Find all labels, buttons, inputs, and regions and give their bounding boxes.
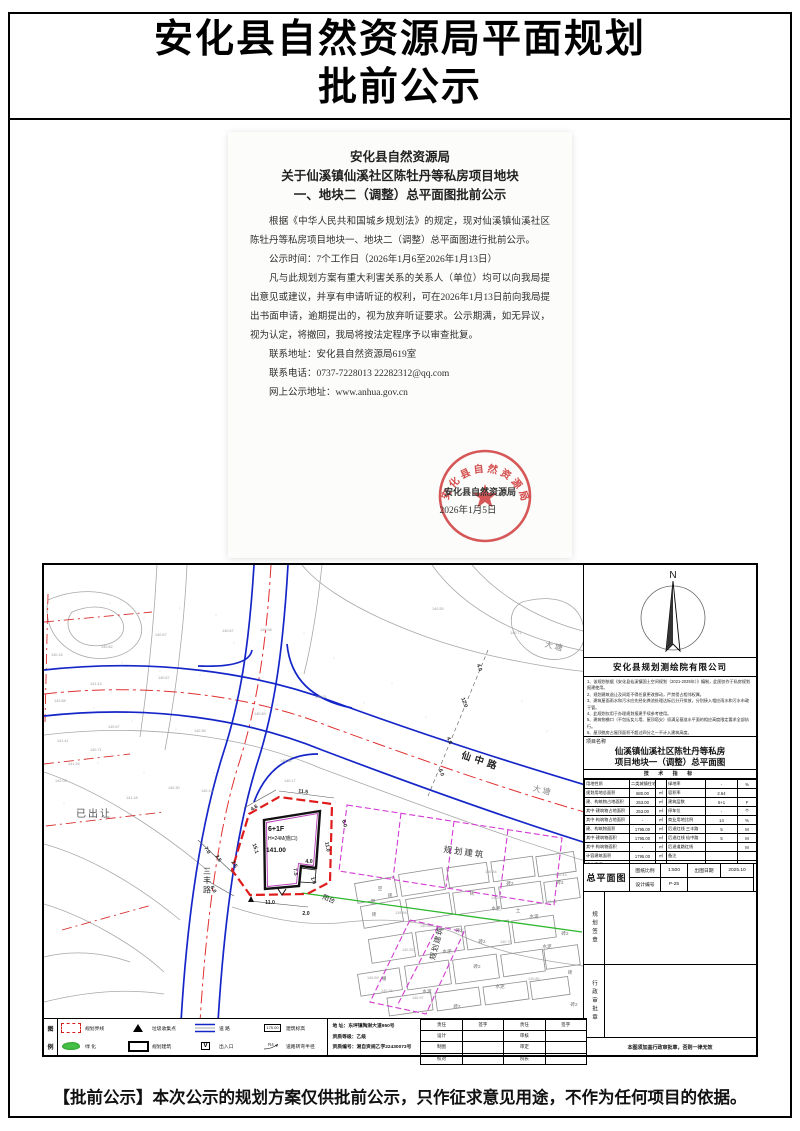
material-label: 砖2 (570, 1001, 578, 1008)
spot-elevation-label: 140.93 (545, 900, 557, 904)
material-label: 砖2 (473, 963, 481, 970)
dimension-label: 12.0 (459, 697, 468, 709)
info-panel: N 安化县规划测绘院有限公司 1、该规划依据《安化县仙溪镇国土空间规划（2021… (583, 565, 756, 1055)
existing-building-outline (406, 893, 453, 922)
spot-elevation-label: 140.03 (491, 896, 503, 900)
project-name-line1: 仙溪镇仙溪社区陈牡丹等私房 (584, 746, 756, 757)
legend-item: 规划建筑 (125, 1041, 192, 1052)
dimension-label: 15.1 (251, 843, 260, 855)
legend-item: V出入口 (192, 1042, 259, 1050)
spot-elevation-label: 140.89 (254, 712, 266, 716)
contact-address: 联系地址：安化县自然资源局619室 (250, 346, 550, 365)
notice-heading-line1: 安化县自然资源局 (242, 148, 558, 167)
material-label: 水泥 (542, 943, 552, 950)
tech-table-row: 计容建筑面积1795.00㎡备注 (585, 852, 757, 861)
legend-item: 道 路 (192, 1023, 259, 1033)
design-no-label: 设计编号 (630, 878, 661, 892)
map-text-label: 6+1F (268, 826, 285, 833)
vegetation-mark: ↓ (303, 630, 305, 635)
tech-table-cell: 商业用地比例 (667, 816, 706, 825)
tech-table-row: 规划用地总面积680.00㎡容积率2.64 (585, 789, 757, 798)
material-label: 砖2 (455, 927, 463, 934)
tech-table-cell: 二类城镇住宅用地 (630, 780, 656, 789)
material-label: 砖2 (556, 879, 564, 886)
tech-table-cell: 后退红线 三丰路 (667, 825, 706, 834)
dimension-label: 4.0 (475, 663, 483, 672)
material-label: 砖 (568, 969, 573, 976)
notice-heading: 安化县自然资源局 关于仙溪镇仙溪社区陈牡丹等私房项目地块 一、地块二（调整）总平… (242, 148, 558, 205)
vegetation-mark: ↓ (93, 705, 95, 710)
existing-building-outline (499, 881, 544, 909)
tech-table-cell: 6+1 (706, 798, 738, 807)
official-seal: 安化县自然资源局 (423, 444, 547, 554)
legend-item-label: 道路转弯半径 (286, 1043, 315, 1050)
legend-label-bottom: 例 (47, 1042, 53, 1051)
trash-point-icon (248, 896, 254, 902)
tech-table-row: 建、构筑物面积1795.00㎡后退红线 三丰路5M (585, 825, 757, 834)
dimension-label: 2.5 (229, 860, 238, 869)
vegetation-mark: ↓ (521, 698, 523, 703)
tech-table-cell: 680.00 (630, 789, 656, 798)
radius-legend-icon: R4 (259, 1041, 286, 1051)
map-text-label: 141.00 (266, 847, 286, 854)
spot-elevation-label: 140.55 (432, 607, 444, 611)
legend-item: R4道路转弯半径 (259, 1041, 326, 1051)
vegetation-mark: ↓ (109, 600, 111, 605)
spot-elevation-label: 140.71 (90, 748, 102, 752)
footer-disclaimer: 【批前公示】本次公示的规划方案仅供批前公示，只作征求意见用途，不作为任何项目的依… (0, 1084, 800, 1108)
legend-item: 175.00建筑标高 (259, 1024, 326, 1032)
vegetation-mark: ↓ (199, 672, 201, 677)
tech-table-title: 技 术 指 标 (584, 770, 756, 779)
tech-table-cell: ㎡ (656, 789, 667, 798)
dimension-label: 11.0 (265, 900, 275, 906)
vegetation-mark: ↓ (143, 615, 145, 620)
tech-table-cell: ㎡ (656, 843, 667, 852)
north-label: N (669, 570, 676, 581)
company-titleblock: 地 址：东坪镇陶澍大道950号 资质等级：乙级 资质编号：湘自资规乙字22430… (327, 1019, 420, 1055)
spot-elevation-label: 140.30 (168, 786, 180, 790)
tech-table-cell: % (738, 816, 757, 825)
tri-legend-icon (125, 1024, 152, 1032)
tech-table-cell: 5 (706, 834, 738, 843)
tech-table-cell: - (630, 843, 656, 852)
tech-table-row: 其中·建筑物占地面积253.00㎡停车位-个 (585, 807, 757, 816)
signature-header-row: 责任签字责任签字 (421, 1020, 587, 1031)
sheet-empty-cell (688, 878, 754, 892)
dimension-label: 1.6 (309, 876, 317, 885)
tech-table-cell: 规划用地总面积 (585, 789, 630, 798)
spot-elevation-label: 140.67 (158, 676, 170, 680)
tech-table-cell: ㎡ (656, 825, 667, 834)
spot-elevation-label: 142.03 (55, 779, 67, 783)
spot-elevation-label: 142.88 (54, 699, 66, 703)
tech-table-cell: 1795.00 (630, 834, 656, 843)
spot-elevation-label: 140.31 (315, 695, 327, 699)
tech-table-row: 其中·构筑物面积-㎡后退道路红线M (585, 843, 757, 852)
tech-table-cell: 后退红线 仙中路 (667, 834, 706, 843)
tech-table-cell: M (738, 843, 757, 852)
tech-table-cell: 计容建筑面积 (585, 852, 630, 861)
tech-table-cell (656, 780, 667, 789)
signature-cell: 责任 (421, 1020, 462, 1031)
signature-cell: 校对 (421, 1053, 462, 1064)
tech-table-cell: ㎡ (656, 807, 667, 816)
legend-item: 绿 化 (58, 1042, 125, 1050)
spot-elevation-label: 140.43 (555, 873, 567, 877)
vegetation-mark: ↓ (179, 605, 181, 610)
planning-stamp-box: 规划签章 (584, 892, 756, 965)
material-label: 砖2 (506, 880, 514, 887)
existing-building-outline (501, 949, 546, 977)
road-legend-icon (192, 1023, 219, 1033)
vegetation-mark: ↓ (159, 668, 161, 673)
existing-building-outline (465, 920, 512, 950)
vegetation-mark: ↓ (131, 718, 133, 723)
material-label: 水泥 (442, 948, 452, 955)
tech-table-cell: 用地性质 (585, 780, 630, 789)
dimension-label: 6.0 (437, 768, 445, 777)
existing-building-outline (512, 915, 557, 943)
project-name-line2: 项目地块一（调整）总平面图 (584, 757, 756, 768)
tech-table-cell: 其中·构筑物占地面积 (585, 816, 630, 825)
tech-table-cell: 建、构筑物面积 (585, 825, 630, 834)
legend-item-label: 建筑标高 (286, 1025, 305, 1032)
tech-table-cell: 2.64 (706, 789, 738, 798)
existing-building-outline (387, 992, 433, 1016)
tech-table-cell: 253.00 (630, 798, 656, 807)
title-divider (8, 118, 792, 120)
scale-label: 图纸比例 (630, 864, 661, 878)
vegetation-mark: ↓ (121, 660, 123, 665)
signature-cell: 院长 (504, 1053, 545, 1064)
company-name: 安化县规划测绘院有限公司 (584, 658, 756, 677)
drawing-note-line: 3、建筑屋面雨水和污水应先经化粪池处理达标后分开排放，分别接入相应雨水和污水市政… (587, 698, 753, 711)
material-label: 水泥 (422, 988, 432, 995)
design-no-value: P-25 (661, 878, 688, 892)
tech-table-cell: 建筑层数 (667, 798, 706, 807)
dimension-label: 4.0 (305, 859, 312, 865)
planning-stamp-label: 规划签章 (584, 892, 605, 964)
legend-column-label: 图 例 (44, 1019, 58, 1055)
legend-item-label: 道 路 (219, 1025, 230, 1032)
svg-text:R4: R4 (268, 1042, 274, 1047)
notice-paragraph: 根据《中华人民共和国城乡规划法》的规定，现对仙溪镇仙溪社区陈牡丹等私房项目地块一… (250, 213, 550, 251)
tech-table-cell: ㎡ (656, 816, 667, 825)
spot-elevation-label: 140.33 (402, 948, 414, 952)
legend-row: 规划界线垃圾收集点道 路175.00建筑标高 (58, 1019, 328, 1037)
legend-item: 垃圾收集点 (125, 1024, 192, 1032)
sheet-info-row: 总平面图 图纸比例 1:500 出图日期 2025.10 设计编号 P-25 (584, 864, 756, 892)
company-cert: 资质编号：湘自资规乙字22430073号 (332, 1043, 420, 1054)
tech-table-cell: - (630, 816, 656, 825)
tech-table-cell: F (738, 798, 757, 807)
tech-table-cell: 其中·建筑物面积 (585, 834, 630, 843)
spot-elevation-label: 140.58 (260, 628, 272, 632)
dimension-label: 4.6 (445, 736, 453, 745)
tech-table-cell (738, 852, 757, 861)
existing-building-outline (483, 981, 529, 1005)
signature-row: 制图审定 (421, 1042, 587, 1053)
material-label: 水泥 (529, 913, 539, 920)
tech-table-cell: ㎡ (656, 852, 667, 861)
spot-elevation-label: 140.79 (500, 940, 512, 944)
spot-elevation-label: 140.34 (485, 870, 497, 874)
vegetation-mark: ↓ (233, 640, 235, 645)
site-plan-sheet: ↓↓↓↓↓↓↓↓↓↓↓↓↓↓↓↓↓↓↓↓↓↓↓↓ 140.16140.82140… (42, 563, 758, 1057)
contact-web: 网上公示地址：www.anhua.gov.cn (250, 384, 550, 403)
tech-table-cell: 个 (738, 807, 757, 816)
signature-cell: 责任 (504, 1020, 545, 1031)
signature-cell: 审核 (504, 1031, 545, 1042)
signature-cell: 审定 (504, 1042, 545, 1053)
tech-table-cell: ㎡ (656, 834, 667, 843)
contact-phone: 联系电话：0737-7228013 22282312@qq.com (250, 365, 550, 384)
spot-elevation-label: 140.17 (284, 779, 296, 783)
spot-elevation-label: 140.67 (155, 633, 167, 637)
existing-building-outline (355, 877, 398, 904)
existing-building-outline (447, 862, 489, 887)
green-legend-icon (58, 1042, 85, 1050)
vegetation-mark: ↓ (71, 610, 73, 615)
legend: 规划界线垃圾收集点道 路175.00建筑标高绿 化规划建筑V出入口R4道路转弯半… (58, 1019, 328, 1055)
tech-table-cell: 5 (706, 825, 738, 834)
v-legend-icon: V (192, 1042, 219, 1050)
signature-row: 设计审核 (421, 1031, 587, 1042)
material-label: 砖2 (561, 930, 569, 937)
spot-elevation-label: 140.67 (108, 725, 120, 729)
sheet-name: 总平面图 (584, 864, 630, 892)
vegetation-mark: ↓ (97, 760, 99, 765)
legend-item-label: 绿 化 (85, 1043, 96, 1050)
material-labels: 空空砖砖水泥土水泥砖2砖2砖2砖砖2砖2水泥砖2棚水泥水泥砖2水泥砖砖2 (371, 879, 578, 1010)
material-label: 空 (371, 898, 376, 904)
material-label: 空 (378, 885, 383, 891)
tech-table-cell: - (706, 780, 738, 789)
notice-paragraph: 公示时间：7个工作日（2026年1月6至2026年1月13日） (250, 251, 550, 270)
signature-cell (545, 1031, 586, 1042)
tech-table-cell: 1795.00 (630, 825, 656, 834)
legend-item: 规划界线 (58, 1023, 125, 1033)
vegetation-mark: ↓ (456, 643, 458, 648)
legend-item-label: 垃圾收集点 (152, 1025, 176, 1032)
spot-elevation-label: 140.97 (412, 996, 424, 1000)
dimension-label: 11.0 (323, 841, 331, 852)
company-address: 地 址：东坪镇陶澍大道950号 (332, 1022, 420, 1033)
vegetation-mark: ↓ (333, 655, 335, 660)
spot-elevation-label: 140.80 (528, 977, 540, 981)
date-value: 2025.10 (721, 864, 754, 878)
dimension-label: 7.5 (292, 868, 299, 876)
seal-signature-date: 2026年1月5日 (388, 502, 548, 516)
spot-elevation-label: 140.36 (280, 759, 292, 763)
tech-table-cell: 后退道路红线 (667, 843, 706, 852)
map-text-label: 大塘 (532, 783, 554, 798)
vegetation-mark: ↓ (143, 770, 145, 775)
vegetation-mark: ↓ (215, 612, 217, 617)
material-label: 砖 (372, 911, 377, 918)
map-text-label: H=24M(檐口) (268, 835, 298, 842)
tech-table-cell: 其中·建筑物占地面积 (585, 807, 630, 816)
page-title-line1: 安化县自然资源局平面规划 (0, 16, 800, 64)
signature-cell: 制图 (421, 1042, 462, 1053)
legend-titleblock-strip: 图 例 规划界线垃圾收集点道 路175.00建筑标高绿 化规划建筑V出入口R4道… (44, 1018, 587, 1055)
panel-bottom-note: 本图须加盖行政审批章，否则一律无效 (584, 1038, 756, 1057)
material-label: 砖2 (478, 938, 486, 945)
drawing-notes: 1、该规划依据《安化县仙溪镇国土空间规划（2021-2035年）》编制，此图仅作… (584, 677, 756, 737)
material-label: 水泥 (491, 905, 501, 912)
spot-elevation-label: 140.82 (101, 645, 113, 649)
tech-table: 用地性质二类城镇住宅用地绿地率-%规划用地总面积680.00㎡容积率2.64建、… (584, 779, 756, 864)
spot-elevation-label: 141.18 (126, 796, 138, 800)
seal-signature-org: 安化县自然资源局 (400, 485, 560, 498)
signature-cell (545, 1053, 586, 1064)
reddash-legend-icon (58, 1023, 85, 1033)
rect-legend-icon (125, 1041, 152, 1052)
page-title-line2: 批前公示 (0, 64, 800, 112)
existing-building-outline (491, 856, 535, 882)
legend-item-label: 出入口 (219, 1043, 233, 1050)
tech-table-cell: 绿地率 (667, 780, 706, 789)
tech-table-row: 其中·构筑物占地面积-㎡商业用地比例14% (585, 816, 757, 825)
planned-parcels (339, 805, 562, 1014)
tech-table-row: 建、构筑物占地面积253.00㎡建筑层数6+1F (585, 798, 757, 807)
spot-elevation-label: 140.71 (510, 631, 522, 635)
date-label: 出图日期 (688, 864, 721, 878)
tech-table-cell: 备注 (667, 852, 706, 861)
tech-table-cell: 停车位 (667, 807, 706, 816)
notice-heading-line3: 一、地块二（调整）总平面图批前公示 (242, 186, 558, 205)
tech-table-cell: M (738, 825, 757, 834)
tech-table-cell (706, 852, 738, 861)
tech-table-cell: 1795.00 (630, 852, 656, 861)
tech-table-cell (738, 789, 757, 798)
vegetation-mark: ↓ (425, 714, 427, 719)
tech-indicator-table: 技 术 指 标 用地性质二类城镇住宅用地绿地率-%规划用地总面积680.00㎡容… (584, 770, 756, 864)
vegetation-mark: ↓ (391, 680, 393, 685)
vegetation-mark: ↓ (175, 726, 177, 731)
vegetation-mark: ↓ (546, 728, 548, 733)
map-text-label: 已出让 (76, 807, 112, 820)
map-text-label: 三丰路 (203, 867, 211, 894)
drawing-note-line: 5、建筑物檐口（不包括女儿墙、屋顶塔尖）须满足基准水平面的相应高度限定要求全部执… (587, 717, 753, 730)
tech-table-row: 用地性质二类城镇住宅用地绿地率-% (585, 780, 757, 789)
legend-row: 绿 化规划建筑V出入口R4道路转弯半径 (58, 1037, 328, 1055)
material-label: 水泥 (495, 983, 505, 990)
map-text-label: 大塘 (544, 639, 566, 654)
spot-elevation-label: 140.67 (222, 629, 234, 633)
dimension-label: 2.0 (302, 911, 309, 917)
tech-table-cell (706, 843, 738, 852)
map-text-labels: 仙中路三丰路已出让大塘大塘规划建筑规划建筑阳台6+1FH=24M(檐口)141.… (76, 639, 566, 961)
material-label: 砖 (470, 890, 475, 897)
green-line (302, 893, 582, 932)
vegetation-mark: ↓ (363, 700, 365, 705)
material-label: 砖 (388, 892, 393, 899)
map-text-label: 阳台 (321, 892, 336, 905)
tech-table-cell: 14 (706, 816, 738, 825)
vegetation-mark: ↓ (63, 800, 65, 805)
approval-stamp-box: 行政审批章 (584, 965, 756, 1038)
tech-table-cell: 253.00 (630, 807, 656, 816)
tech-table-cell: % (738, 780, 757, 789)
material-label: 砖2 (453, 1003, 461, 1010)
spot-elevation-label: 140.13 (201, 789, 213, 793)
north-arrow-icon: N (584, 565, 755, 657)
signature-cell: 签字 (545, 1020, 586, 1031)
vegetation-marks: ↓↓↓↓↓↓↓↓↓↓↓↓↓↓↓↓↓↓↓↓↓↓↓↓ (63, 600, 548, 805)
existing-building-outline (453, 954, 500, 984)
tech-table-cell: - (706, 807, 738, 816)
material-label: 土 (516, 907, 521, 913)
tech-table-cell: 建、构筑物占地面积 (585, 798, 630, 807)
spot-elevation-label: 140.16 (51, 653, 63, 657)
dimension-label: 11.5 (298, 788, 309, 795)
notice-document: 安化县自然资源局 关于仙溪镇仙溪社区陈牡丹等私房项目地块 一、地块二（调整）总平… (228, 132, 572, 558)
signature-cell: 设计 (421, 1031, 462, 1042)
signature-cell (545, 1042, 586, 1053)
notice-body: 根据《中华人民共和国城乡规划法》的规定，现对仙溪镇仙溪社区陈牡丹等私房项目地块一… (250, 213, 550, 346)
signature-cell: 签字 (462, 1020, 503, 1031)
legend-item-label: 规划界线 (85, 1025, 104, 1032)
notice-heading-line2: 关于仙溪镇仙溪社区陈牡丹等私房项目地块 (242, 167, 558, 186)
material-label: 棚 (382, 975, 387, 982)
tech-table-cell: M (738, 834, 757, 843)
spot-elevation-label: 139.94 (395, 911, 407, 915)
page-title: 安化县自然资源局平面规划 批前公示 (0, 16, 800, 112)
spot-elevation-label: 140.26 (381, 989, 393, 993)
signature-row: 校对院长 (421, 1053, 587, 1064)
spot-elevation-label: 141.26 (68, 762, 80, 766)
signature-table: 责任签字责任签字设计审核制图审定校对院长 (420, 1019, 587, 1065)
vegetation-mark: ↓ (213, 770, 215, 775)
dimension-lines (198, 650, 488, 907)
signature-cell (462, 1053, 503, 1064)
project-name-box: 项目名称 仙溪镇仙溪社区陈牡丹等私房 项目地块一（调整）总平面图 (584, 737, 756, 770)
spot-elevation-label: 140.38 (194, 729, 206, 733)
drawing-note-line: 1、该规划依据《安化县仙溪镇国土空间规划（2021-2035年）》编制，此图仅作… (587, 679, 753, 692)
scale-value: 1:500 (661, 864, 688, 878)
signature-cell (462, 1042, 503, 1053)
legend-item-label: 规划建筑 (152, 1043, 171, 1050)
tech-table-cell: ㎡ (656, 798, 667, 807)
legend-label-top: 图 (47, 1024, 53, 1033)
tech-table-cell: 容积率 (667, 789, 706, 798)
dimension-label: 6.0 (340, 819, 348, 828)
notice-paragraph: 凡与此规划方案有重大利害关系的关系人（单位）均可以向我局提出意见或建议，并享有申… (250, 270, 550, 346)
approval-stamp-label: 行政审批章 (584, 965, 605, 1037)
company-grade: 资质等级：乙级 (332, 1033, 420, 1044)
dimension-label: 7.0 (202, 846, 211, 855)
elev-legend-icon: 175.00 (259, 1024, 286, 1032)
signature-cell (462, 1031, 503, 1042)
tech-table-cell: 其中·构筑物面积 (585, 843, 630, 852)
spot-elevation-label: 140.50 (420, 924, 432, 928)
tech-table-row: 其中·建筑物面积1795.00㎡后退红线 仙中路5M (585, 834, 757, 843)
spot-elevation-label: 140.59 (367, 976, 379, 980)
spot-elevation-label: 141.41 (57, 739, 69, 743)
north-arrow-box: N (584, 565, 756, 658)
project-name-label: 项目名称 (584, 737, 756, 746)
spot-elevation-label: 141.43 (90, 682, 102, 686)
dimension-label: 4.6 (250, 804, 259, 813)
